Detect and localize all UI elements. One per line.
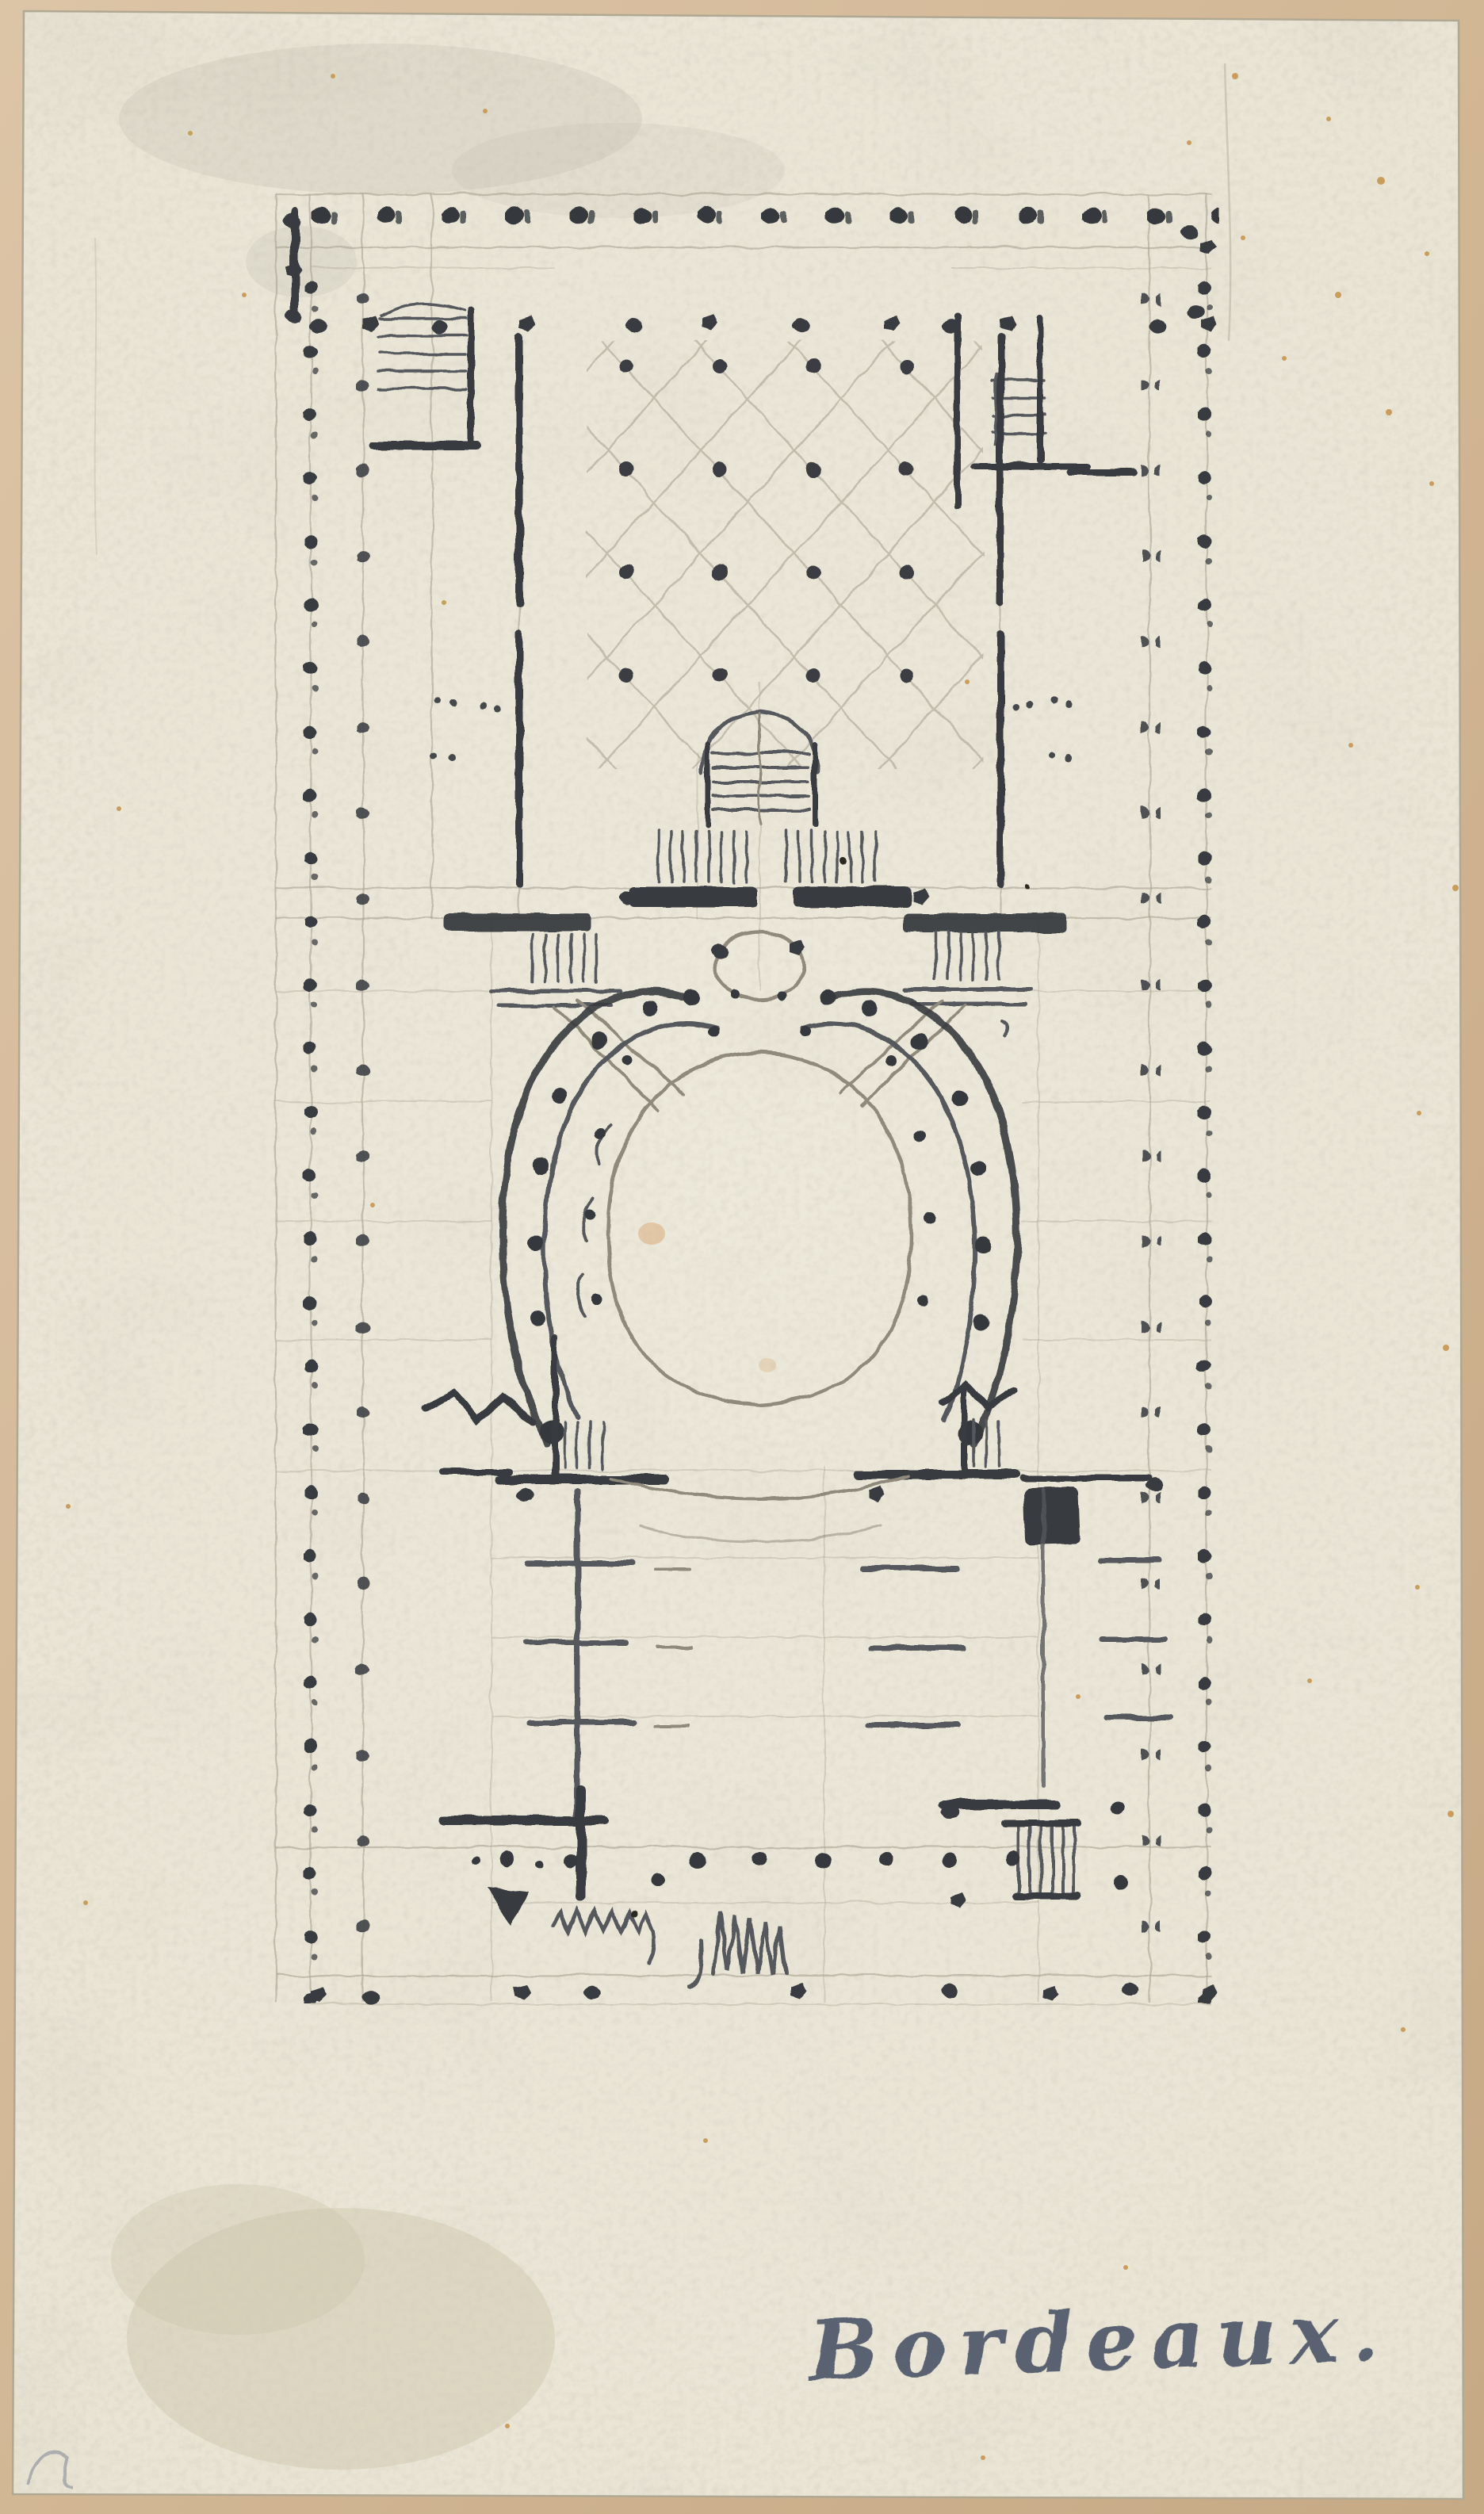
inscription-bordeaux: Bordeaux. xyxy=(805,2282,1394,2400)
vestibule-column-grid xyxy=(607,347,981,763)
colonnade-left-outer xyxy=(301,263,320,2003)
colonnade-top-row xyxy=(308,205,1219,228)
colonnade-left-inner xyxy=(354,266,373,2002)
colonnade-right-inner xyxy=(1142,266,1161,2002)
solid-pier-block xyxy=(1023,1487,1080,1545)
colonnade-right-outer xyxy=(1195,263,1214,2003)
artwork-scan: Bordeaux. xyxy=(0,0,1484,2514)
